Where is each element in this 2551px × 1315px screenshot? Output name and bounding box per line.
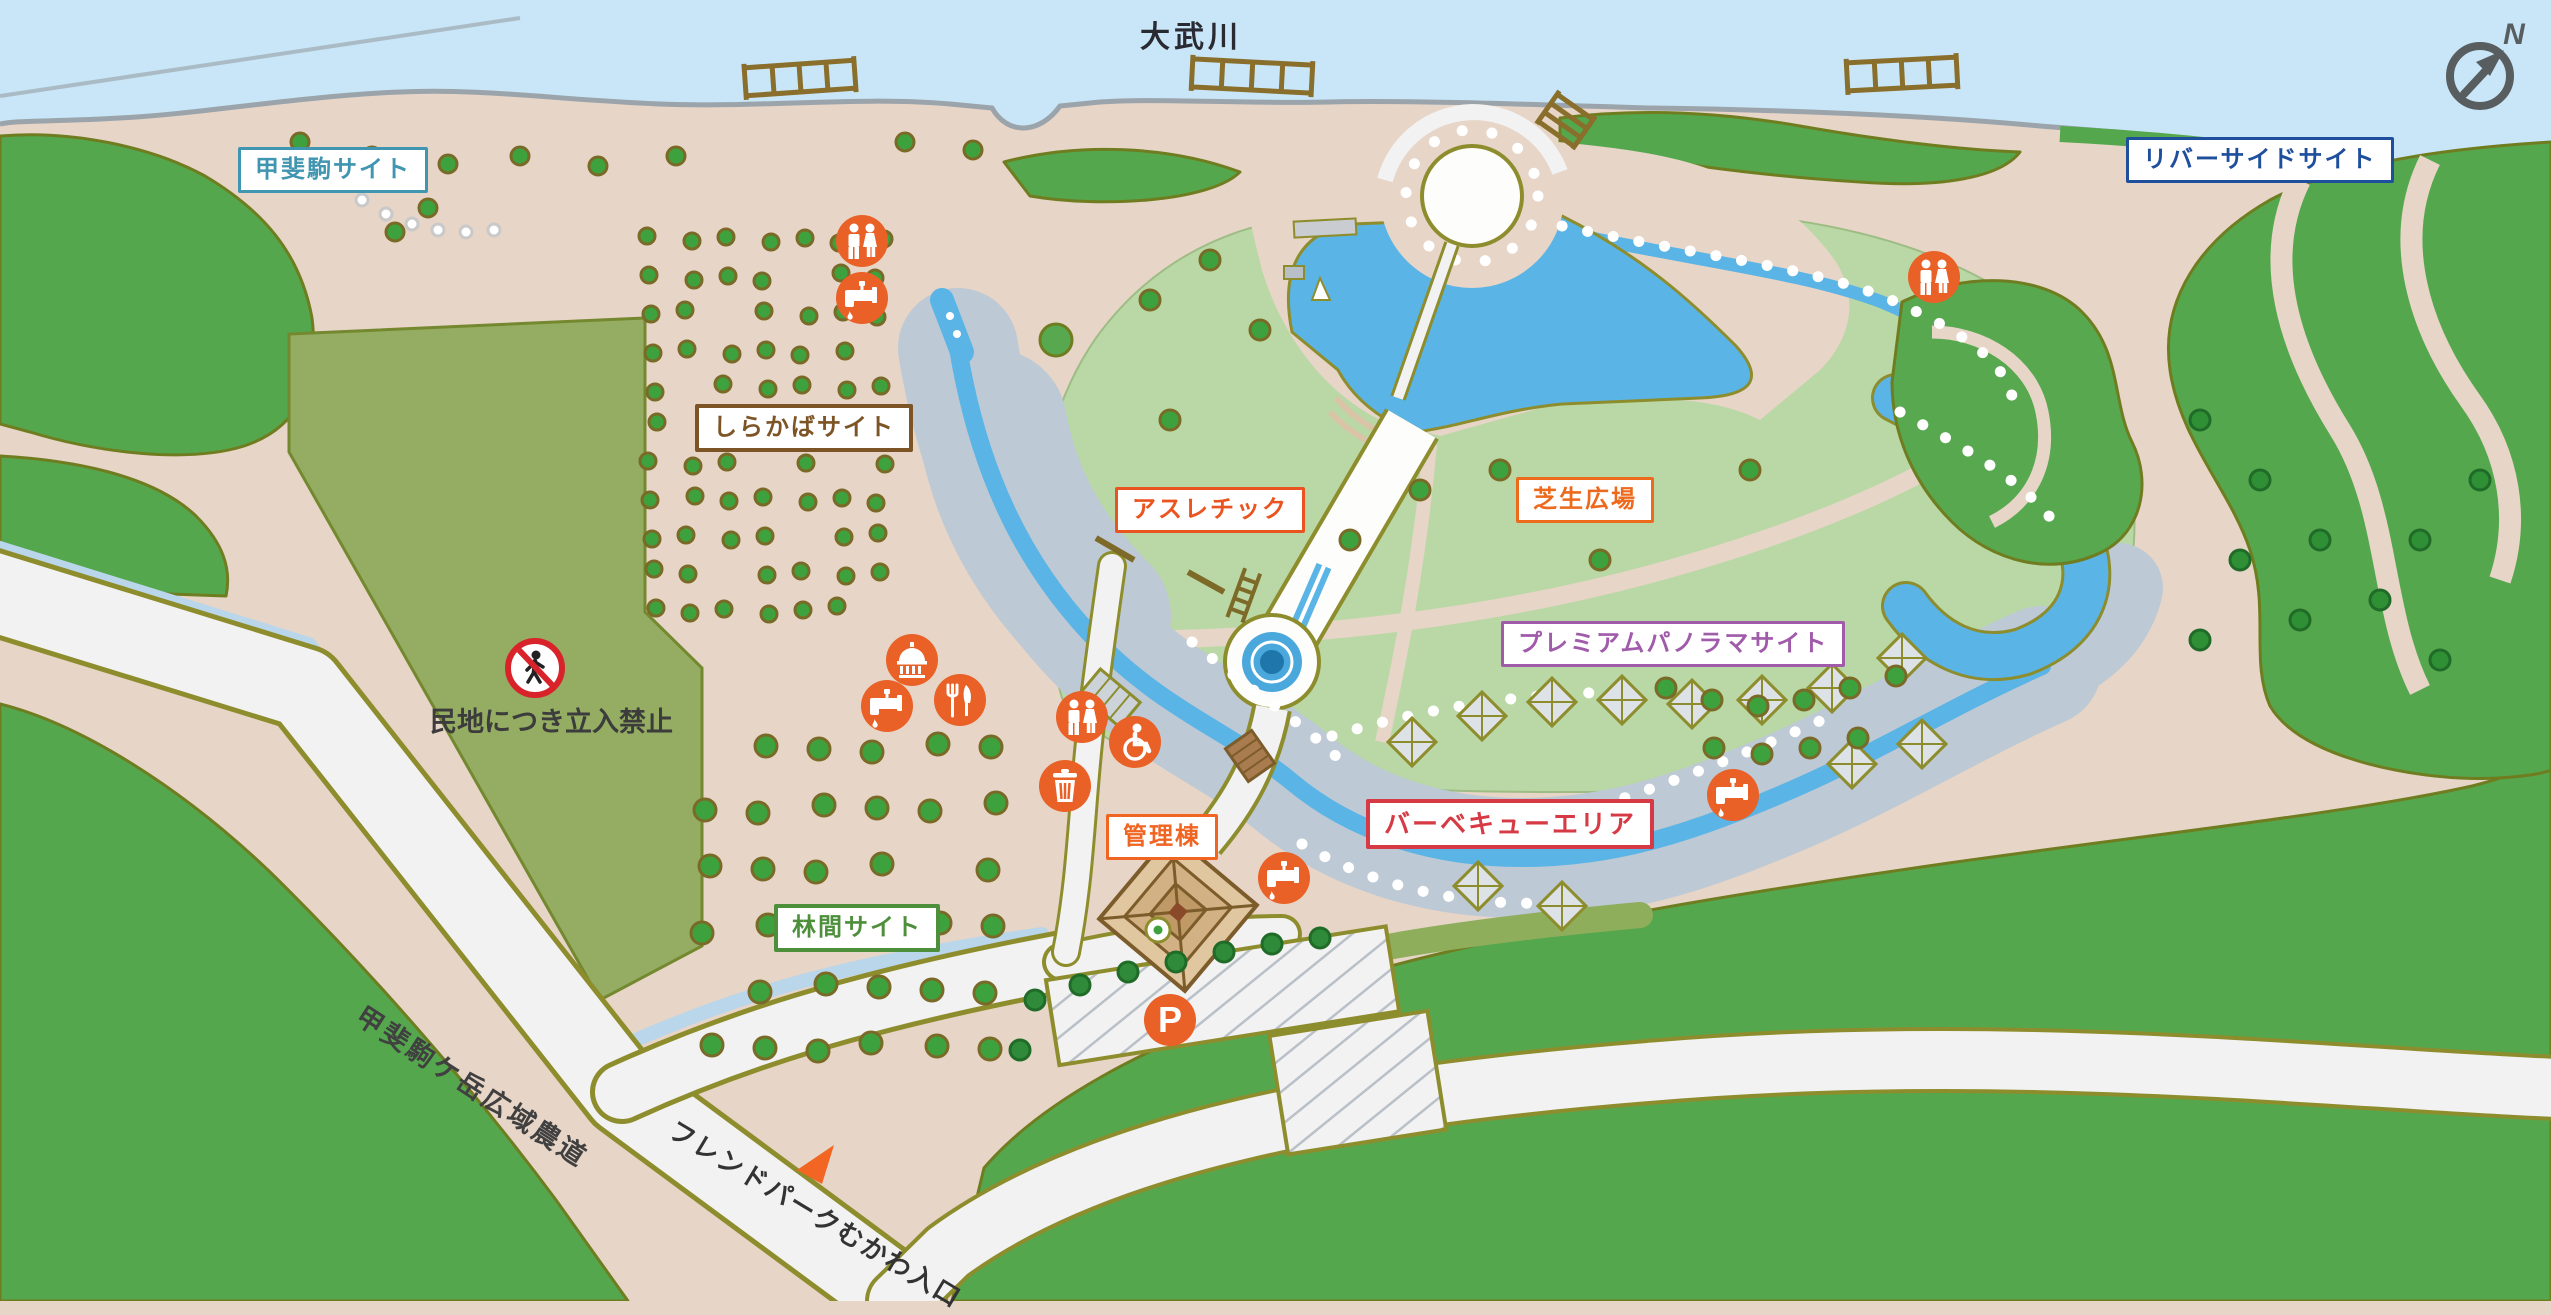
label-riverside-site: リバーサイドサイト xyxy=(2126,137,2394,183)
tree-dot xyxy=(687,488,703,504)
tree-dot xyxy=(805,861,827,883)
tree-dot xyxy=(386,223,404,241)
tree-dot xyxy=(1848,728,1868,748)
tree-dot xyxy=(647,384,663,400)
tree-dot xyxy=(1656,678,1676,698)
tree-dot xyxy=(792,347,808,363)
tree-dot xyxy=(720,268,736,284)
gazebo-icon xyxy=(885,633,939,687)
tree-dot xyxy=(1262,934,1282,954)
label-athletic-area: アスレチック xyxy=(1115,487,1305,533)
tree-dot xyxy=(1800,738,1820,758)
tree-dot xyxy=(716,601,732,617)
tree-dot xyxy=(837,343,853,359)
tree-dot xyxy=(1010,1040,1030,1060)
tree-dot xyxy=(793,563,809,579)
tree-dot xyxy=(1490,460,1510,480)
tree-dot xyxy=(1840,678,1860,698)
tree-dot xyxy=(488,224,500,236)
parking-icon: P xyxy=(1143,993,1197,1047)
tree-dot xyxy=(684,233,700,249)
compass-icon: N xyxy=(2428,14,2540,126)
tree-dot xyxy=(719,454,735,470)
tree-dot xyxy=(1590,550,1610,570)
tree-dot xyxy=(754,1037,776,1059)
tree-dot xyxy=(2470,470,2490,490)
tree-dot xyxy=(763,234,779,250)
tree-dot xyxy=(686,272,702,288)
tree-dot xyxy=(982,915,1004,937)
tree-dot xyxy=(927,733,949,755)
tree-dot xyxy=(1704,738,1724,758)
dock xyxy=(1294,218,1357,237)
tree-dot xyxy=(872,564,888,580)
tree-dot xyxy=(868,495,884,511)
tree-dot xyxy=(860,1032,882,1054)
label-premium-panorama-site: プレミアムパノラマサイト xyxy=(1501,621,1845,667)
park-map-base xyxy=(0,0,2551,1301)
tree-dot xyxy=(813,794,835,816)
tree-dot xyxy=(797,230,813,246)
tree-dot xyxy=(432,224,444,236)
tree-dot xyxy=(640,453,656,469)
tree-dot xyxy=(644,531,660,547)
tree-dot xyxy=(759,567,775,583)
tree-dot xyxy=(801,308,817,324)
tree-dot xyxy=(643,306,659,322)
water-tap-icon xyxy=(860,679,914,733)
tree-dot xyxy=(694,799,716,821)
tree-dot xyxy=(834,490,850,506)
tree-dot xyxy=(724,346,740,362)
tree-dot xyxy=(1200,250,1220,270)
tree-dot xyxy=(921,979,943,1001)
tree-dot xyxy=(1166,952,1186,972)
tree-dot xyxy=(649,414,665,430)
plaza-center xyxy=(1422,146,1522,246)
tree-dot xyxy=(754,273,770,289)
tree-dot xyxy=(1310,928,1330,948)
accessible-restroom-icon xyxy=(1108,715,1162,769)
tree-dot xyxy=(691,922,713,944)
tree-dot xyxy=(677,302,693,318)
tree-dot xyxy=(974,982,996,1004)
tree-dot xyxy=(680,566,696,582)
label-bbq-area: バーベキューエリア xyxy=(1366,799,1654,849)
tree-dot xyxy=(866,797,888,819)
tree-dot xyxy=(439,155,457,173)
tree-dot xyxy=(795,602,811,618)
tree-dot xyxy=(1740,460,1760,480)
tree-dot xyxy=(1070,975,1090,995)
tree-dot xyxy=(642,492,658,508)
restroom-icon xyxy=(835,214,889,268)
tree-dot xyxy=(798,455,814,471)
tree-dot xyxy=(1140,290,1160,310)
no-entry-walking-icon xyxy=(504,637,566,699)
tree-dot xyxy=(760,381,776,397)
tree-dot xyxy=(749,981,771,1003)
restroom-icon xyxy=(1055,690,1109,744)
tree-dot xyxy=(838,568,854,584)
tree-dot xyxy=(648,600,664,616)
tree-dot xyxy=(829,598,845,614)
tree-dot xyxy=(839,382,855,398)
tree-dot xyxy=(755,489,771,505)
tree-dot xyxy=(807,1040,829,1062)
tree-dot xyxy=(977,859,999,881)
compass-north-label: N xyxy=(2503,18,2526,51)
tree-dot xyxy=(678,527,694,543)
tree-dot xyxy=(815,973,837,995)
tree-dot xyxy=(2370,590,2390,610)
tree-dot xyxy=(964,141,982,159)
tree-dot xyxy=(2290,610,2310,630)
river-name: 大武川 xyxy=(1140,12,1242,56)
tree-dot xyxy=(808,738,830,760)
tree-dot xyxy=(2250,470,2270,490)
tree-dot xyxy=(380,208,392,220)
tree-dot xyxy=(870,525,886,541)
tree-dot xyxy=(861,741,883,763)
parking-letter: P xyxy=(1158,999,1182,1040)
tree-dot xyxy=(877,456,893,472)
tree-dot xyxy=(836,529,852,545)
tree-dot xyxy=(2230,550,2250,570)
tree-dot xyxy=(919,800,941,822)
tree-dot xyxy=(723,532,739,548)
restaurant-icon xyxy=(933,673,987,727)
tree-dot xyxy=(747,802,769,824)
tree-dot xyxy=(721,493,737,509)
tree-dot xyxy=(794,377,810,393)
tree-dot xyxy=(511,147,529,165)
tree-dot xyxy=(589,157,607,175)
tree-dot xyxy=(682,605,698,621)
tree-dot xyxy=(1748,696,1768,716)
tree-dot xyxy=(979,1038,1001,1060)
no-entry-text: 民地につき立入禁止 xyxy=(430,700,670,739)
label-shirakaba-site: しらかばサイト xyxy=(695,404,913,452)
tree-dot xyxy=(646,561,662,577)
label-rinkan-site: 林間サイト xyxy=(774,904,940,952)
tree-dot xyxy=(1250,320,1270,340)
tree-dot xyxy=(756,303,772,319)
tree-dot xyxy=(685,458,701,474)
water-tap-icon xyxy=(1257,851,1311,905)
tree-dot xyxy=(718,229,734,245)
tree-dot xyxy=(1702,690,1722,710)
tree-dot xyxy=(755,735,777,757)
tree-dot xyxy=(641,267,657,283)
tree-dot xyxy=(2410,530,2430,550)
trash-icon xyxy=(1038,759,1092,813)
tree-dot xyxy=(926,1035,948,1057)
tree-dot xyxy=(800,494,816,510)
tree-dot xyxy=(871,853,893,875)
tree-dot xyxy=(896,133,914,151)
tree-dot xyxy=(1025,990,1045,1010)
restroom-icon xyxy=(1907,250,1961,304)
water-tap-icon xyxy=(835,271,889,325)
tree-dot xyxy=(460,226,472,238)
label-lawn-plaza: 芝生広場 xyxy=(1516,477,1654,523)
tree-dot xyxy=(1752,744,1772,764)
tree-dot xyxy=(873,378,889,394)
tower-center xyxy=(1260,650,1284,674)
tree-dot xyxy=(1340,530,1360,550)
tree-dot xyxy=(1410,480,1430,500)
tree-dot xyxy=(715,376,731,392)
tree-dot xyxy=(757,528,773,544)
tree-dot xyxy=(1886,666,1906,686)
tree-dot xyxy=(667,147,685,165)
tree-dot xyxy=(356,194,368,206)
label-kaikoma-site: 甲斐駒サイト xyxy=(238,147,428,193)
tree-dot xyxy=(639,228,655,244)
tree-dot xyxy=(419,199,437,217)
label-management-building: 管理棟 xyxy=(1106,814,1218,860)
tree-dot xyxy=(701,1034,723,1056)
tree-dot xyxy=(2310,530,2330,550)
tree-dot xyxy=(2190,410,2210,430)
tree-dot xyxy=(406,218,418,230)
tree-dot xyxy=(699,855,721,877)
tree-dot xyxy=(679,341,695,357)
park-map: 大武川 民地につき立入禁止 甲斐駒ケ岳広域農道 フレンドパークむかわ入口 甲斐駒… xyxy=(0,0,2551,1301)
tree-dot xyxy=(1160,410,1180,430)
tree-dot xyxy=(1118,962,1138,982)
tree-dot xyxy=(868,976,890,998)
tree-dot xyxy=(985,792,1007,814)
pond-vehicle xyxy=(1284,266,1304,279)
tree-dot xyxy=(2430,650,2450,670)
tree-dot xyxy=(761,606,777,622)
tree-dot xyxy=(752,858,774,880)
tree-dot xyxy=(758,342,774,358)
tree-dot xyxy=(2190,630,2210,650)
tree-dot xyxy=(1794,690,1814,710)
tree-dot xyxy=(645,345,661,361)
water-tap-icon xyxy=(1706,768,1760,822)
tree-dot xyxy=(1214,942,1234,962)
tree-dot xyxy=(980,736,1002,758)
